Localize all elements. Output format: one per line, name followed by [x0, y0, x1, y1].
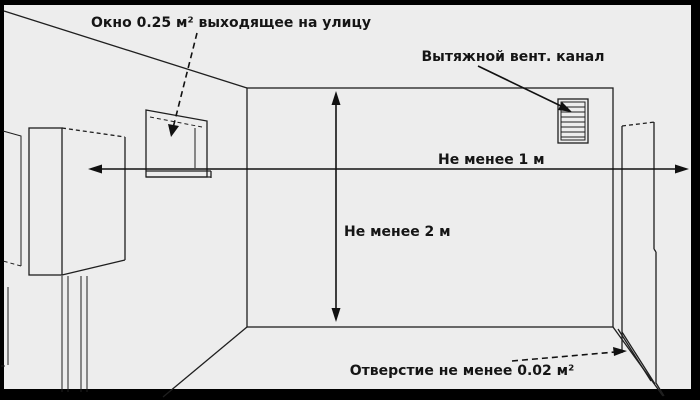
- min-width-label: Не менее 1 м: [438, 152, 545, 168]
- window-label: Окно 0.25 м² выходящее на улицу: [91, 15, 371, 31]
- opening-label: Отверстие не менее 0.02 м²: [350, 363, 575, 379]
- room-outline: [4, 11, 663, 397]
- vent-label: Вытяжной вент. канал: [422, 49, 605, 65]
- boiler-room-diagram: Окно 0.25 м² выходящее на улицу Вытяжной…: [0, 0, 700, 400]
- width-dimension-arrow: [88, 165, 689, 174]
- door: [618, 122, 664, 396]
- boiler: [29, 128, 125, 275]
- window: [146, 110, 211, 178]
- boiler-pipes: [62, 276, 87, 392]
- opening-pointer-arrow: [512, 347, 627, 361]
- height-dimension-arrow: [332, 91, 341, 322]
- left-wall-edge-object: [1, 131, 21, 366]
- diagram-frame: Окно 0.25 м² выходящее на улицу Вытяжной…: [0, 0, 700, 400]
- vent-pointer-arrow: [478, 66, 572, 112]
- min-height-label: Не менее 2 м: [344, 224, 451, 240]
